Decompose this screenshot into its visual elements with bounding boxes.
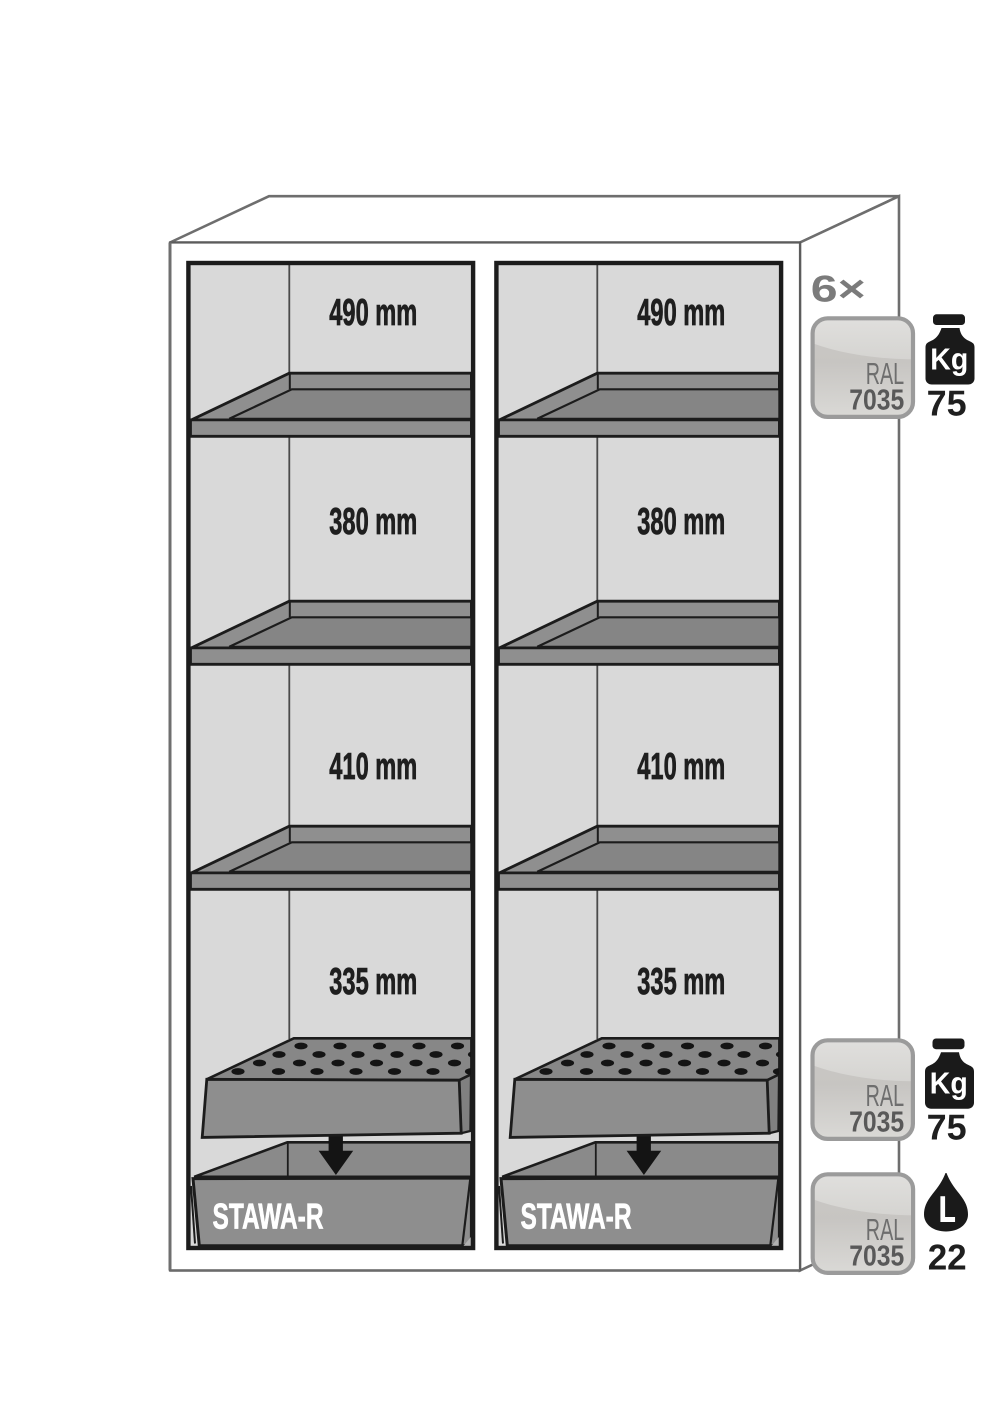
svg-text:6×: 6× — [811, 267, 866, 309]
svg-text:75: 75 — [927, 1106, 967, 1147]
svg-text:75: 75 — [927, 382, 967, 423]
svg-text:22: 22 — [928, 1237, 967, 1278]
